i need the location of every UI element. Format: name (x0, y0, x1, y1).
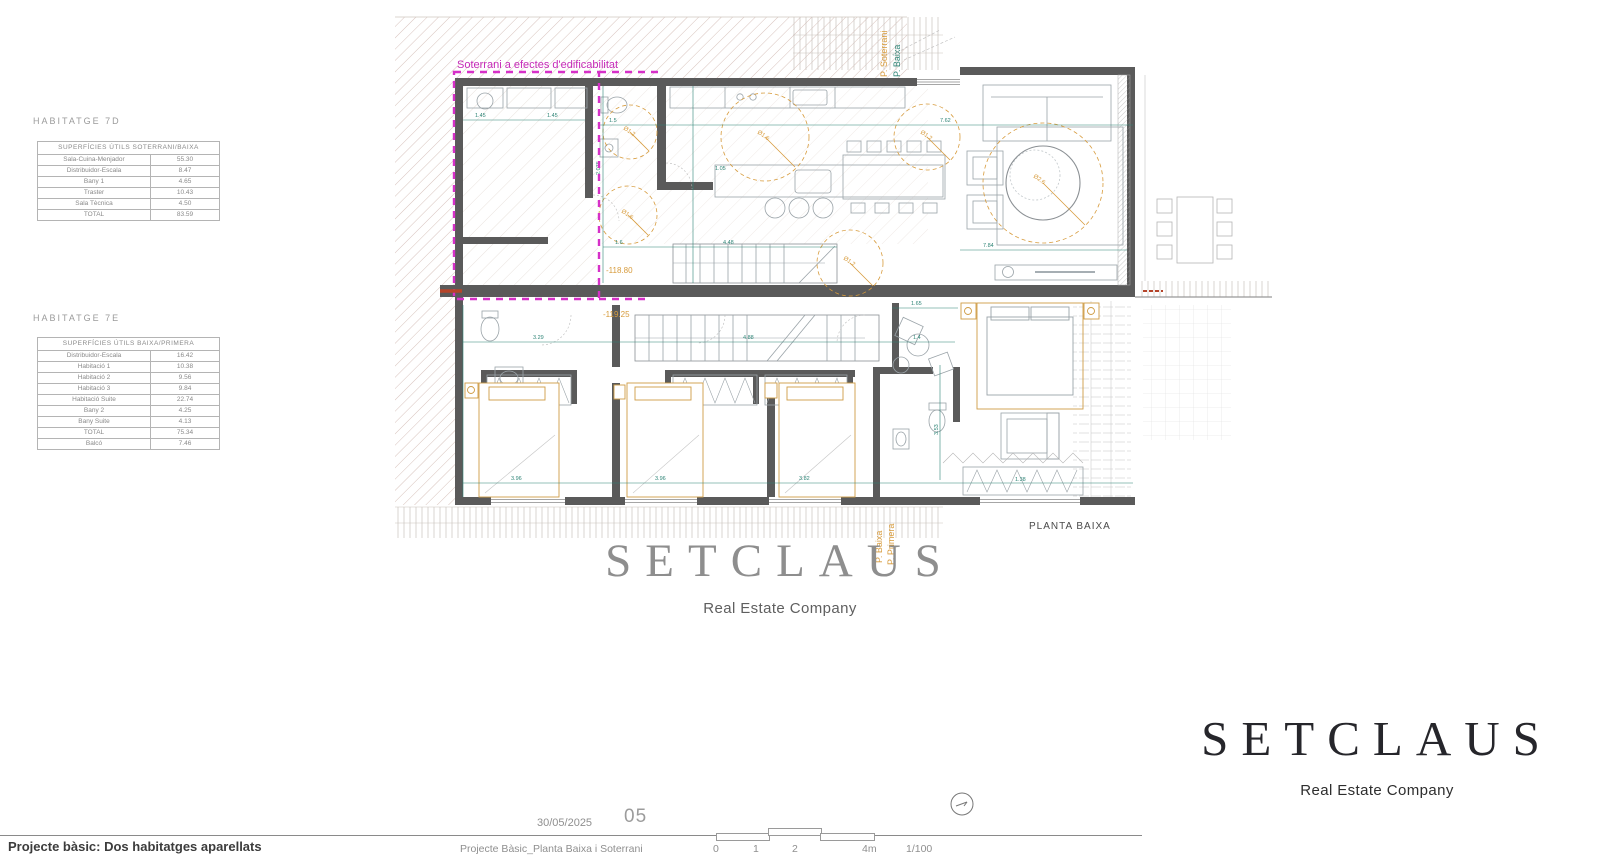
watermark-brand: SETCLAUS (560, 534, 1000, 588)
scale-bar-segment (716, 833, 770, 841)
level-lower: -119.25 (603, 310, 630, 319)
row-value: 9.56 (151, 373, 220, 384)
dim: 1.38 (1015, 477, 1026, 483)
row-label: Distribuidor-Escala (38, 351, 151, 362)
table-row: Bany 24.25 (38, 406, 220, 417)
table-row: Traster10.43 (38, 188, 220, 199)
table-header-7e: SUPERFÍCIES ÚTILS BAIXA/PRIMERA (38, 338, 220, 351)
light-label: Ø1.2 (842, 256, 857, 269)
drawing-title: Projecte Bàsic_Planta Baixa i Soterrani (460, 843, 643, 855)
row-label: Habitació 1 (38, 362, 151, 373)
dim: 7.84 (983, 243, 994, 249)
table-title-habitatge-7d: HABITATGE 7D (33, 116, 121, 126)
row-label: Sala-Cuina-Menjador (38, 155, 151, 166)
row-value: 10.43 (151, 188, 220, 199)
table-row: Habitació 39.84 (38, 384, 220, 395)
logo-brand: SETCLAUS (1192, 710, 1562, 767)
table-row-total: TOTAL83.59 (38, 210, 220, 221)
beds (465, 303, 1099, 497)
row-label: TOTAL (38, 428, 151, 439)
floor-label: PLANTA BAIXA (1029, 521, 1111, 532)
row-value: 7.46 (151, 439, 220, 450)
row-value: 4.13 (151, 417, 220, 428)
row-label: Traster (38, 188, 151, 199)
row-value: 4.65 (151, 177, 220, 188)
table-row: Balcó7.46 (38, 439, 220, 450)
dim: 4.48 (723, 240, 734, 246)
row-value: 10.38 (151, 362, 220, 373)
surface-table-7d: SUPERFÍCIES ÚTILS SOTERRANI/BAIXA Sala-C… (37, 141, 220, 221)
table-row: Distribuidor-Escala16.42 (38, 351, 220, 362)
dim: 1.05 (715, 166, 726, 172)
row-value: 9.84 (151, 384, 220, 395)
axis-label-soterrani: P. Soterrani (879, 31, 889, 77)
scale-tick-1: 1 (753, 843, 759, 855)
table-row: Bany 14.65 (38, 177, 220, 188)
project-title: Projecte bàsic: Dos habitatges aparellat… (8, 839, 262, 854)
dim: 3.96 (655, 476, 666, 482)
table-row: Habitació Suite22.74 (38, 395, 220, 406)
level-upper: -118.80 (606, 266, 633, 275)
dim: 3.96 (511, 476, 522, 482)
dim: 1.45 (547, 113, 558, 119)
scale-tick-2: 2 (792, 843, 798, 855)
dim: 1.65 (911, 301, 922, 307)
dim: 1.4 (913, 335, 921, 341)
table-header-7d: SUPERFÍCIES ÚTILS SOTERRANI/BAIXA (38, 142, 220, 155)
dim: 1.5 (609, 118, 617, 124)
table-row: Distribuidor-Escala8.47 (38, 166, 220, 177)
row-label: TOTAL (38, 210, 151, 221)
row-label: Habitació 3 (38, 384, 151, 395)
dim: 3.53 (934, 424, 940, 435)
row-label: Bany 2 (38, 406, 151, 417)
north-symbol-icon (947, 789, 977, 819)
row-label: Bany 1 (38, 177, 151, 188)
dim: 1.45 (475, 113, 486, 119)
row-value: 4.25 (151, 406, 220, 417)
row-value: 22.74 (151, 395, 220, 406)
issue-date: 30/05/2025 (537, 817, 592, 829)
dim: 1.6 (615, 240, 623, 246)
row-label: Habitació Suite (38, 395, 151, 406)
row-label: Balcó (38, 439, 151, 450)
row-value: 16.42 (151, 351, 220, 362)
table-row: Habitació 29.56 (38, 373, 220, 384)
table-title-habitatge-7e: HABITATGE 7E (33, 313, 120, 323)
floor-plan-svg: Ø1.2 Ø1.6 Ø1.6 Ø1.2 Ø1.2 Ø2.6 1.45 1.45 … (395, 15, 1275, 565)
company-logo: SETCLAUS Real Estate Company (1192, 710, 1562, 799)
row-label: Sala Tècnica (38, 199, 151, 210)
watermark-tagline: Real Estate Company (560, 600, 1000, 617)
row-label: Habitació 2 (38, 373, 151, 384)
scale-bar-segment (768, 828, 822, 836)
row-value: 8.47 (151, 166, 220, 177)
surface-table-7e: SUPERFÍCIES ÚTILS BAIXA/PRIMERA Distribu… (37, 337, 220, 450)
edificability-note: Soterrani a efectes d'edificabilitat (457, 59, 618, 71)
table-row: Sala Tècnica4.50 (38, 199, 220, 210)
watermark: SETCLAUS Real Estate Company (560, 534, 1000, 617)
scale-ratio: 1/100 (906, 843, 932, 855)
table-row: Habitació 110.38 (38, 362, 220, 373)
row-value: 4.50 (151, 199, 220, 210)
row-value: 55.30 (151, 155, 220, 166)
scale-tick-0: 0 (713, 843, 719, 855)
dim: 3.82 (799, 476, 810, 482)
scale-tick-4m: 4m (862, 843, 877, 855)
row-value: 83.59 (151, 210, 220, 221)
row-label: Distribuidor-Escala (38, 166, 151, 177)
table-row: Sala-Cuina-Menjador55.30 (38, 155, 220, 166)
dim: 7.62 (940, 118, 951, 124)
axis-label-baixa-top: P. Baixa (892, 45, 902, 77)
dim: 3.29 (533, 335, 544, 341)
table-row-total: TOTAL75.34 (38, 428, 220, 439)
row-value: 75.34 (151, 428, 220, 439)
logo-tagline: Real Estate Company (1192, 782, 1562, 799)
dim: 4.88 (743, 335, 754, 341)
table-row: Bany Suite4.13 (38, 417, 220, 428)
scale-bar-segment (820, 833, 875, 841)
sheet-number: 05 (624, 806, 647, 828)
row-label: Bany Suite (38, 417, 151, 428)
footer-divider (0, 835, 1142, 836)
